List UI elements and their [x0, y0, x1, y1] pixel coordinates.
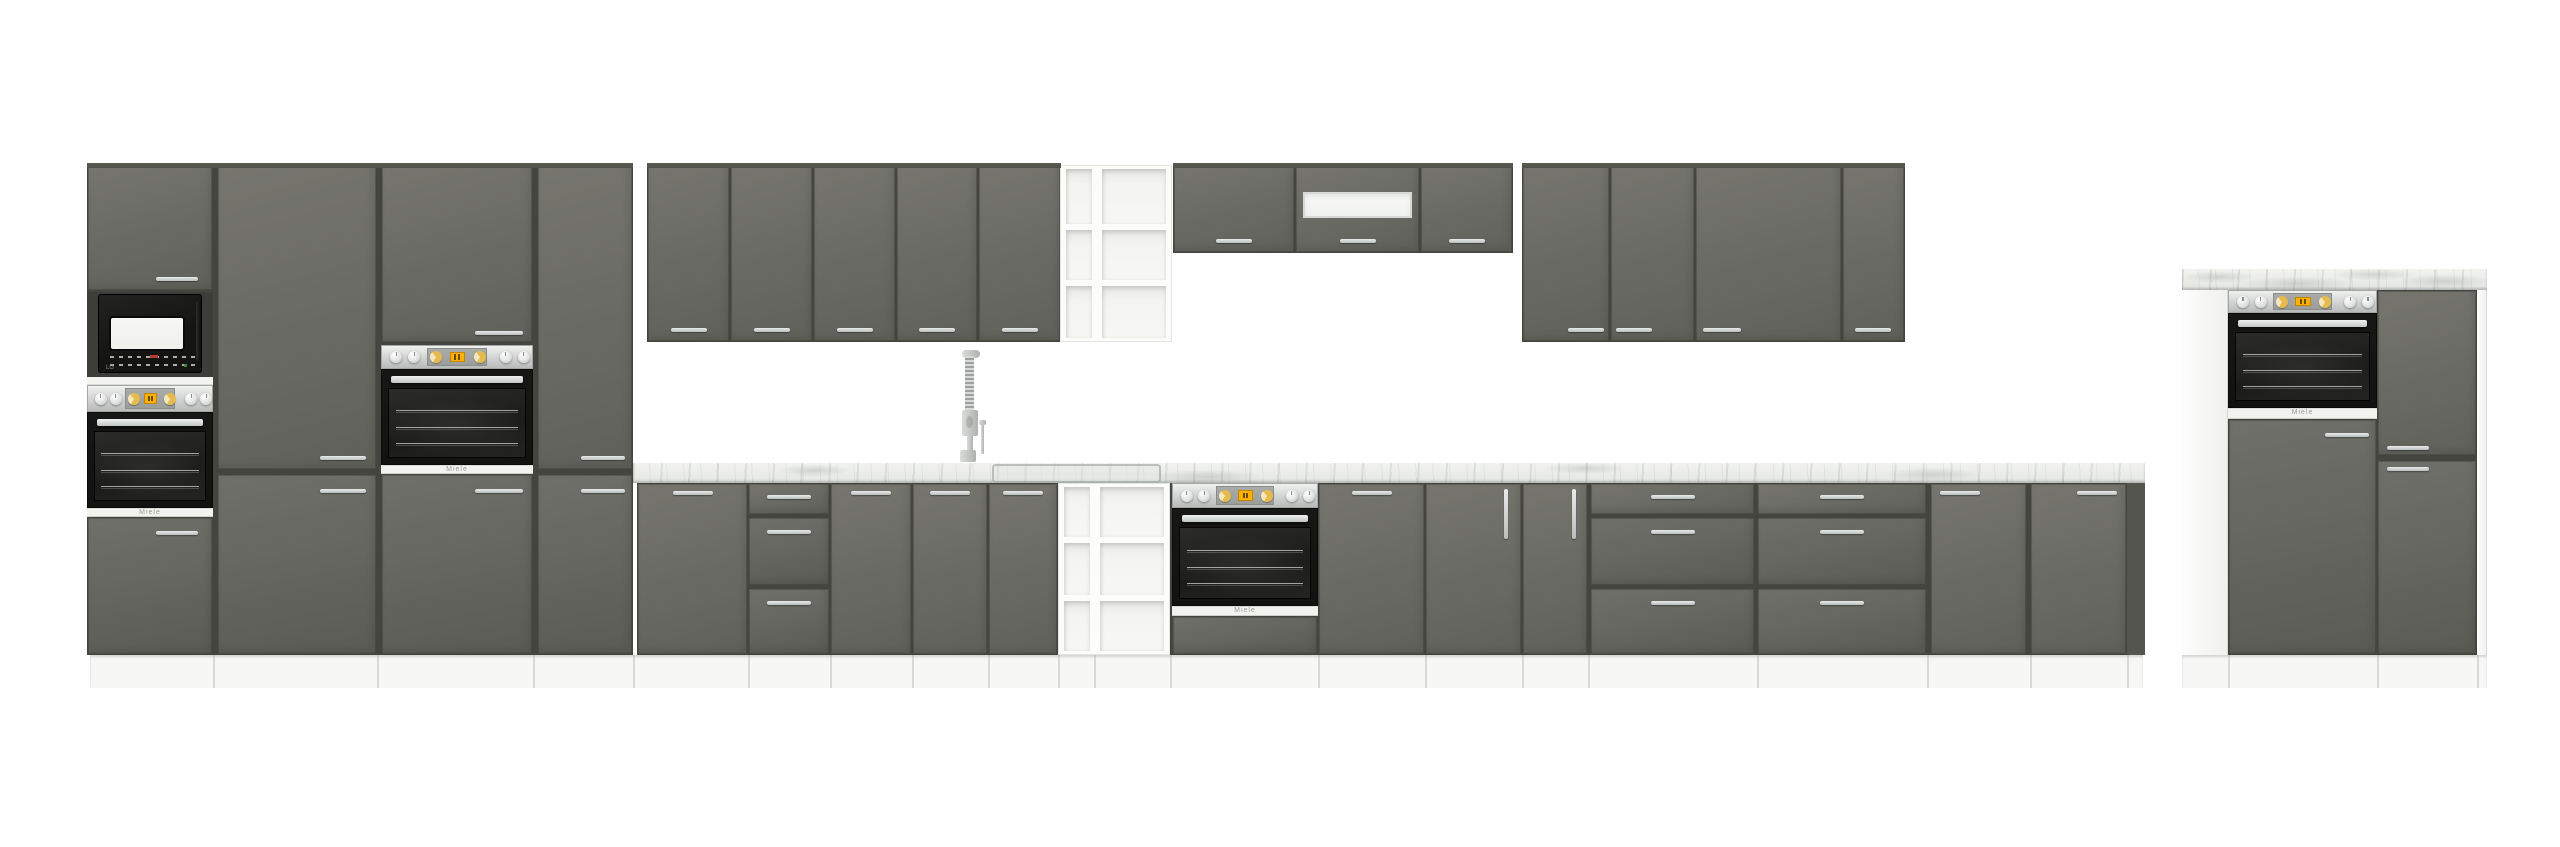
- cabinet-handle: [1572, 489, 1576, 539]
- oven-knob: [2344, 296, 2356, 308]
- gold-knob: [2319, 296, 2331, 308]
- base-run-end-panel: [2127, 483, 2145, 655]
- cabinet-handle: [1820, 530, 1864, 534]
- plinth-joint-line: [830, 655, 832, 688]
- cabinet-handle: [837, 328, 873, 332]
- cabinet-handle: [581, 489, 625, 493]
- oven-knob: [1181, 490, 1193, 502]
- cabinet-handle: [2387, 446, 2429, 450]
- oven-logo-strip: Miele: [1172, 606, 1318, 616]
- base-cabinet-door: [989, 484, 1057, 654]
- cabinet-handle: [2077, 491, 2117, 495]
- wall-cabinet-door: [979, 164, 1060, 341]
- base-cabinet-door: [1931, 484, 2026, 654]
- oven-panel-inset: [427, 348, 488, 366]
- microwave-handle: [196, 302, 201, 361]
- oven-panel-inset: [2273, 293, 2333, 310]
- cabinet-handle: [851, 491, 891, 495]
- cabinet-handle: [320, 456, 366, 460]
- cabinet-handle: [919, 328, 955, 332]
- plinth-joint-line: [1058, 655, 1060, 688]
- drawer-front: [749, 589, 829, 654]
- oven-display: [1238, 490, 1253, 501]
- plinth-joint-line: [1094, 655, 1096, 688]
- wall-cabinet-door: [1174, 164, 1294, 252]
- cabinet-handle: [673, 491, 713, 495]
- cabinet-handle: [1449, 239, 1485, 243]
- cabinet-handle: [1504, 489, 1508, 539]
- faucet-neck: [967, 436, 973, 450]
- shelf-strip: [87, 377, 213, 385]
- right-group-end-panel: [2477, 290, 2487, 655]
- built-in-oven: [87, 412, 213, 508]
- oven-knob: [185, 393, 197, 405]
- cabinet-handle: [1352, 491, 1392, 495]
- gold-knob: [164, 393, 176, 405]
- open-shelf-cell: [1100, 487, 1164, 537]
- oven-knob: [500, 351, 512, 363]
- open-shelf-cell: [1100, 543, 1164, 595]
- plinth-joint-line: [213, 655, 215, 688]
- cabinet-top-edge: [647, 163, 1061, 168]
- cabinet-handle: [1940, 491, 1980, 495]
- plinth-joint-line: [1522, 655, 1524, 688]
- faucet-lever-tip: [979, 420, 986, 425]
- hood-cabinet-door: [1296, 164, 1419, 252]
- cabinet-handle: [1651, 495, 1695, 499]
- oven-logo-strip: Miele: [381, 465, 533, 474]
- plinth-joint-line: [2127, 655, 2129, 688]
- cabinet-handle: [930, 491, 970, 495]
- cabinet-handle: [1616, 328, 1652, 332]
- cabinet-handle: [320, 489, 366, 493]
- oven-knob: [200, 393, 212, 405]
- oven-rack-line: [396, 443, 517, 444]
- drawer-front: [1758, 589, 1926, 654]
- oven-rack-line: [1187, 567, 1303, 568]
- oven-knob: [408, 351, 420, 363]
- plinth-joint-line: [1927, 655, 1929, 688]
- base-cabinet-door: [1523, 484, 1587, 654]
- oven-glass: [388, 388, 526, 458]
- gold-knob: [1219, 490, 1231, 502]
- base-cabinet-door: [1319, 484, 1424, 654]
- open-shelf-wall-unit: [1060, 165, 1172, 342]
- cabinet-handle: [767, 495, 811, 499]
- faucet-base: [960, 450, 976, 462]
- oven-door-handle-bar: [391, 376, 523, 383]
- wall-cabinet-door: [1421, 164, 1512, 252]
- oven-knob: [390, 351, 402, 363]
- cabinet-handle: [1651, 601, 1695, 605]
- drawer-front: [749, 484, 829, 514]
- open-shelf-cell: [1066, 286, 1092, 338]
- oven-panel-inset: [125, 388, 175, 409]
- plinth-joint-line: [2228, 655, 2230, 688]
- oven-rack-line: [2243, 354, 2362, 355]
- microwave-logo-text: LG: [106, 365, 114, 371]
- appliance-logo-text: Miele: [139, 509, 161, 516]
- right-unit-top-door: [2378, 291, 2476, 455]
- built-in-oven: [381, 369, 533, 465]
- gold-knob: [430, 351, 442, 363]
- oven-door-handle-bar: [1182, 515, 1308, 522]
- plinth-joint-line: [1757, 655, 1759, 688]
- oven-knob: [95, 393, 107, 405]
- kitchen-faucet: [950, 348, 995, 462]
- cabinet-handle: [475, 331, 523, 335]
- oven-rack-line: [2243, 386, 2362, 387]
- base-cabinet-door: [2031, 484, 2126, 654]
- cabinet-handle: [475, 489, 523, 493]
- appliance-logo-text: Miele: [2292, 409, 2314, 416]
- oven-knob: [1303, 490, 1315, 502]
- right-group-side-panel: [2182, 290, 2228, 655]
- cabinet-handle: [767, 601, 811, 605]
- oven-display: [2295, 297, 2310, 307]
- plinth-joint-line: [988, 655, 990, 688]
- cabinet-handle: [1855, 328, 1891, 332]
- base-cabinet-door: [1426, 484, 1521, 654]
- cabinet-handle: [1651, 530, 1695, 534]
- pantry-tall-door: [218, 164, 376, 469]
- open-shelf-cell: [1066, 230, 1092, 280]
- open-shelf-cell: [1100, 601, 1164, 651]
- sink-outline: [992, 464, 1161, 483]
- open-shelf-base-unit: [1058, 483, 1170, 655]
- cabinet-top-edge: [1173, 163, 1513, 168]
- base-cabinet-door: [831, 484, 911, 654]
- oven-door-handle-bar: [2238, 320, 2367, 327]
- oven-control-panel: [1172, 483, 1318, 508]
- oven-tower-top-door: [382, 164, 532, 342]
- faucet-lever: [981, 424, 984, 454]
- cabinet-handle: [671, 328, 707, 332]
- cabinet-handle: [581, 456, 625, 460]
- plinth-joint-line: [1425, 655, 1427, 688]
- kitchen-set-render: LGMieleMieleMieleMiele: [0, 0, 2560, 847]
- microwave-window: [111, 318, 183, 349]
- faucet-spring: [965, 356, 974, 416]
- oven-glass: [1179, 527, 1311, 599]
- gold-knob: [2276, 296, 2288, 308]
- oven-rack-line: [396, 427, 517, 428]
- oven-glass: [2235, 332, 2370, 401]
- cabinet-handle: [2387, 467, 2429, 471]
- cabinet-handle: [156, 277, 198, 281]
- cabinet-handle: [1568, 328, 1604, 332]
- wall-cabinet-door: [1843, 164, 1904, 341]
- oven-logo-strip: Miele: [2228, 408, 2377, 419]
- oven-rack-line: [1187, 583, 1303, 584]
- wall-cabinet-door: [731, 164, 812, 341]
- plinth: [2182, 655, 2487, 688]
- cabinet-handle: [156, 531, 198, 535]
- open-shelf-cell: [1102, 286, 1166, 338]
- wall-cabinet-door: [1611, 164, 1694, 341]
- gold-knob: [128, 393, 140, 405]
- oven-panel-inset: [1216, 486, 1274, 505]
- oven-rack-line: [101, 470, 200, 471]
- oven-display: [144, 393, 157, 405]
- worktop: [633, 462, 2145, 483]
- cabinet-handle: [1003, 491, 1043, 495]
- open-shelf-cell: [1064, 543, 1090, 595]
- cabinet-handle: [1002, 328, 1038, 332]
- oven-rack-line: [2243, 370, 2362, 371]
- wall-cabinet-door: [814, 164, 895, 341]
- cabinet-handle: [767, 530, 811, 534]
- oven-control-panel: [381, 345, 533, 369]
- plinth-joint-line: [2030, 655, 2032, 688]
- open-shelf-cell: [1064, 487, 1090, 537]
- cabinet-handle: [1703, 328, 1741, 332]
- microwave-led: [184, 364, 187, 367]
- built-in-oven: [1172, 508, 1318, 606]
- faucet-body-cutout: [966, 416, 973, 428]
- cabinet-handle: [1340, 239, 1376, 243]
- built-in-microwave: LG: [87, 292, 213, 377]
- open-shelf-cell: [1064, 601, 1090, 651]
- hood-glass-insert: [1303, 192, 1412, 218]
- plinth-joint-line: [633, 655, 635, 688]
- oven-rack-line: [101, 453, 200, 454]
- open-shelf-cell: [1102, 169, 1166, 224]
- plinth-joint-line: [1588, 655, 1590, 688]
- plinth-joint-line: [2377, 655, 2379, 688]
- tall-unit-door: [538, 164, 632, 469]
- plinth-joint-line: [748, 655, 750, 688]
- oven-knob: [518, 351, 530, 363]
- gold-knob: [1261, 490, 1273, 502]
- plinth-joint-line: [912, 655, 914, 688]
- oven-tower-bottom-door: [382, 475, 532, 654]
- base-cabinet-door: [638, 484, 747, 654]
- wall-cabinet-door: [1696, 164, 1841, 341]
- cabinet-top-edge: [87, 163, 633, 168]
- drawer-front: [1758, 518, 1926, 585]
- wall-cabinet-door: [1523, 164, 1609, 341]
- right-unit-bottom-door: [2378, 461, 2476, 654]
- appliance-logo-text: Miele: [446, 466, 468, 473]
- base-cabinet-door: [913, 484, 987, 654]
- microwave-body: LG: [98, 294, 202, 373]
- cabinet-handle: [1820, 495, 1864, 499]
- plinth-joint-line: [533, 655, 535, 688]
- oven-knob: [110, 393, 122, 405]
- oven-knob: [2255, 296, 2267, 308]
- drawer-front: [749, 518, 829, 585]
- gold-knob: [474, 351, 486, 363]
- cabinet-top-edge: [1522, 163, 1905, 168]
- oven-logo-strip: Miele: [87, 508, 213, 517]
- open-shelf-cell: [1102, 230, 1166, 280]
- appliance-logo-text: Miele: [1234, 607, 1256, 614]
- drawer-front: [1591, 484, 1754, 514]
- microwave-display: [150, 355, 158, 358]
- plinth-joint-line: [1318, 655, 1320, 688]
- drawer-front: [1591, 589, 1754, 654]
- drawer-front: [1758, 484, 1926, 514]
- wall-cabinet-door: [897, 164, 977, 341]
- oven-tower-bottom-door: [2229, 420, 2376, 654]
- oven-base-filler-panel: [1173, 617, 1317, 654]
- plinth-joint-line: [2477, 655, 2479, 688]
- tall-unit-bottom-door: [88, 518, 212, 654]
- oven-knob: [2237, 296, 2249, 308]
- oven-rack-line: [1187, 550, 1303, 551]
- drawer-front: [1591, 518, 1754, 585]
- oven-rack-line: [396, 410, 517, 411]
- tall-unit-top-door: [88, 164, 212, 290]
- cabinet-handle: [754, 328, 790, 332]
- oven-knob: [1198, 490, 1210, 502]
- right-group-worktop: [2182, 268, 2487, 290]
- oven-knob: [2362, 296, 2374, 308]
- oven-rack-line: [101, 486, 200, 487]
- plinth: [90, 655, 2143, 688]
- built-in-oven: [2228, 313, 2377, 408]
- plinth-joint-line: [1170, 655, 1172, 688]
- plinth-joint-line: [377, 655, 379, 688]
- oven-door-handle-bar: [97, 419, 203, 426]
- cabinet-handle: [1216, 239, 1252, 243]
- oven-knob: [1286, 490, 1298, 502]
- oven-glass: [94, 431, 206, 501]
- cabinet-handle: [2325, 433, 2369, 437]
- oven-control-panel: [87, 385, 213, 412]
- wall-cabinet-door: [648, 164, 729, 341]
- open-shelf-cell: [1066, 169, 1092, 224]
- pantry-bottom-door: [218, 475, 376, 654]
- cabinet-handle: [1820, 601, 1864, 605]
- tall-unit-bottom-door: [538, 475, 632, 654]
- oven-display: [450, 352, 466, 362]
- oven-control-panel: [2228, 290, 2377, 313]
